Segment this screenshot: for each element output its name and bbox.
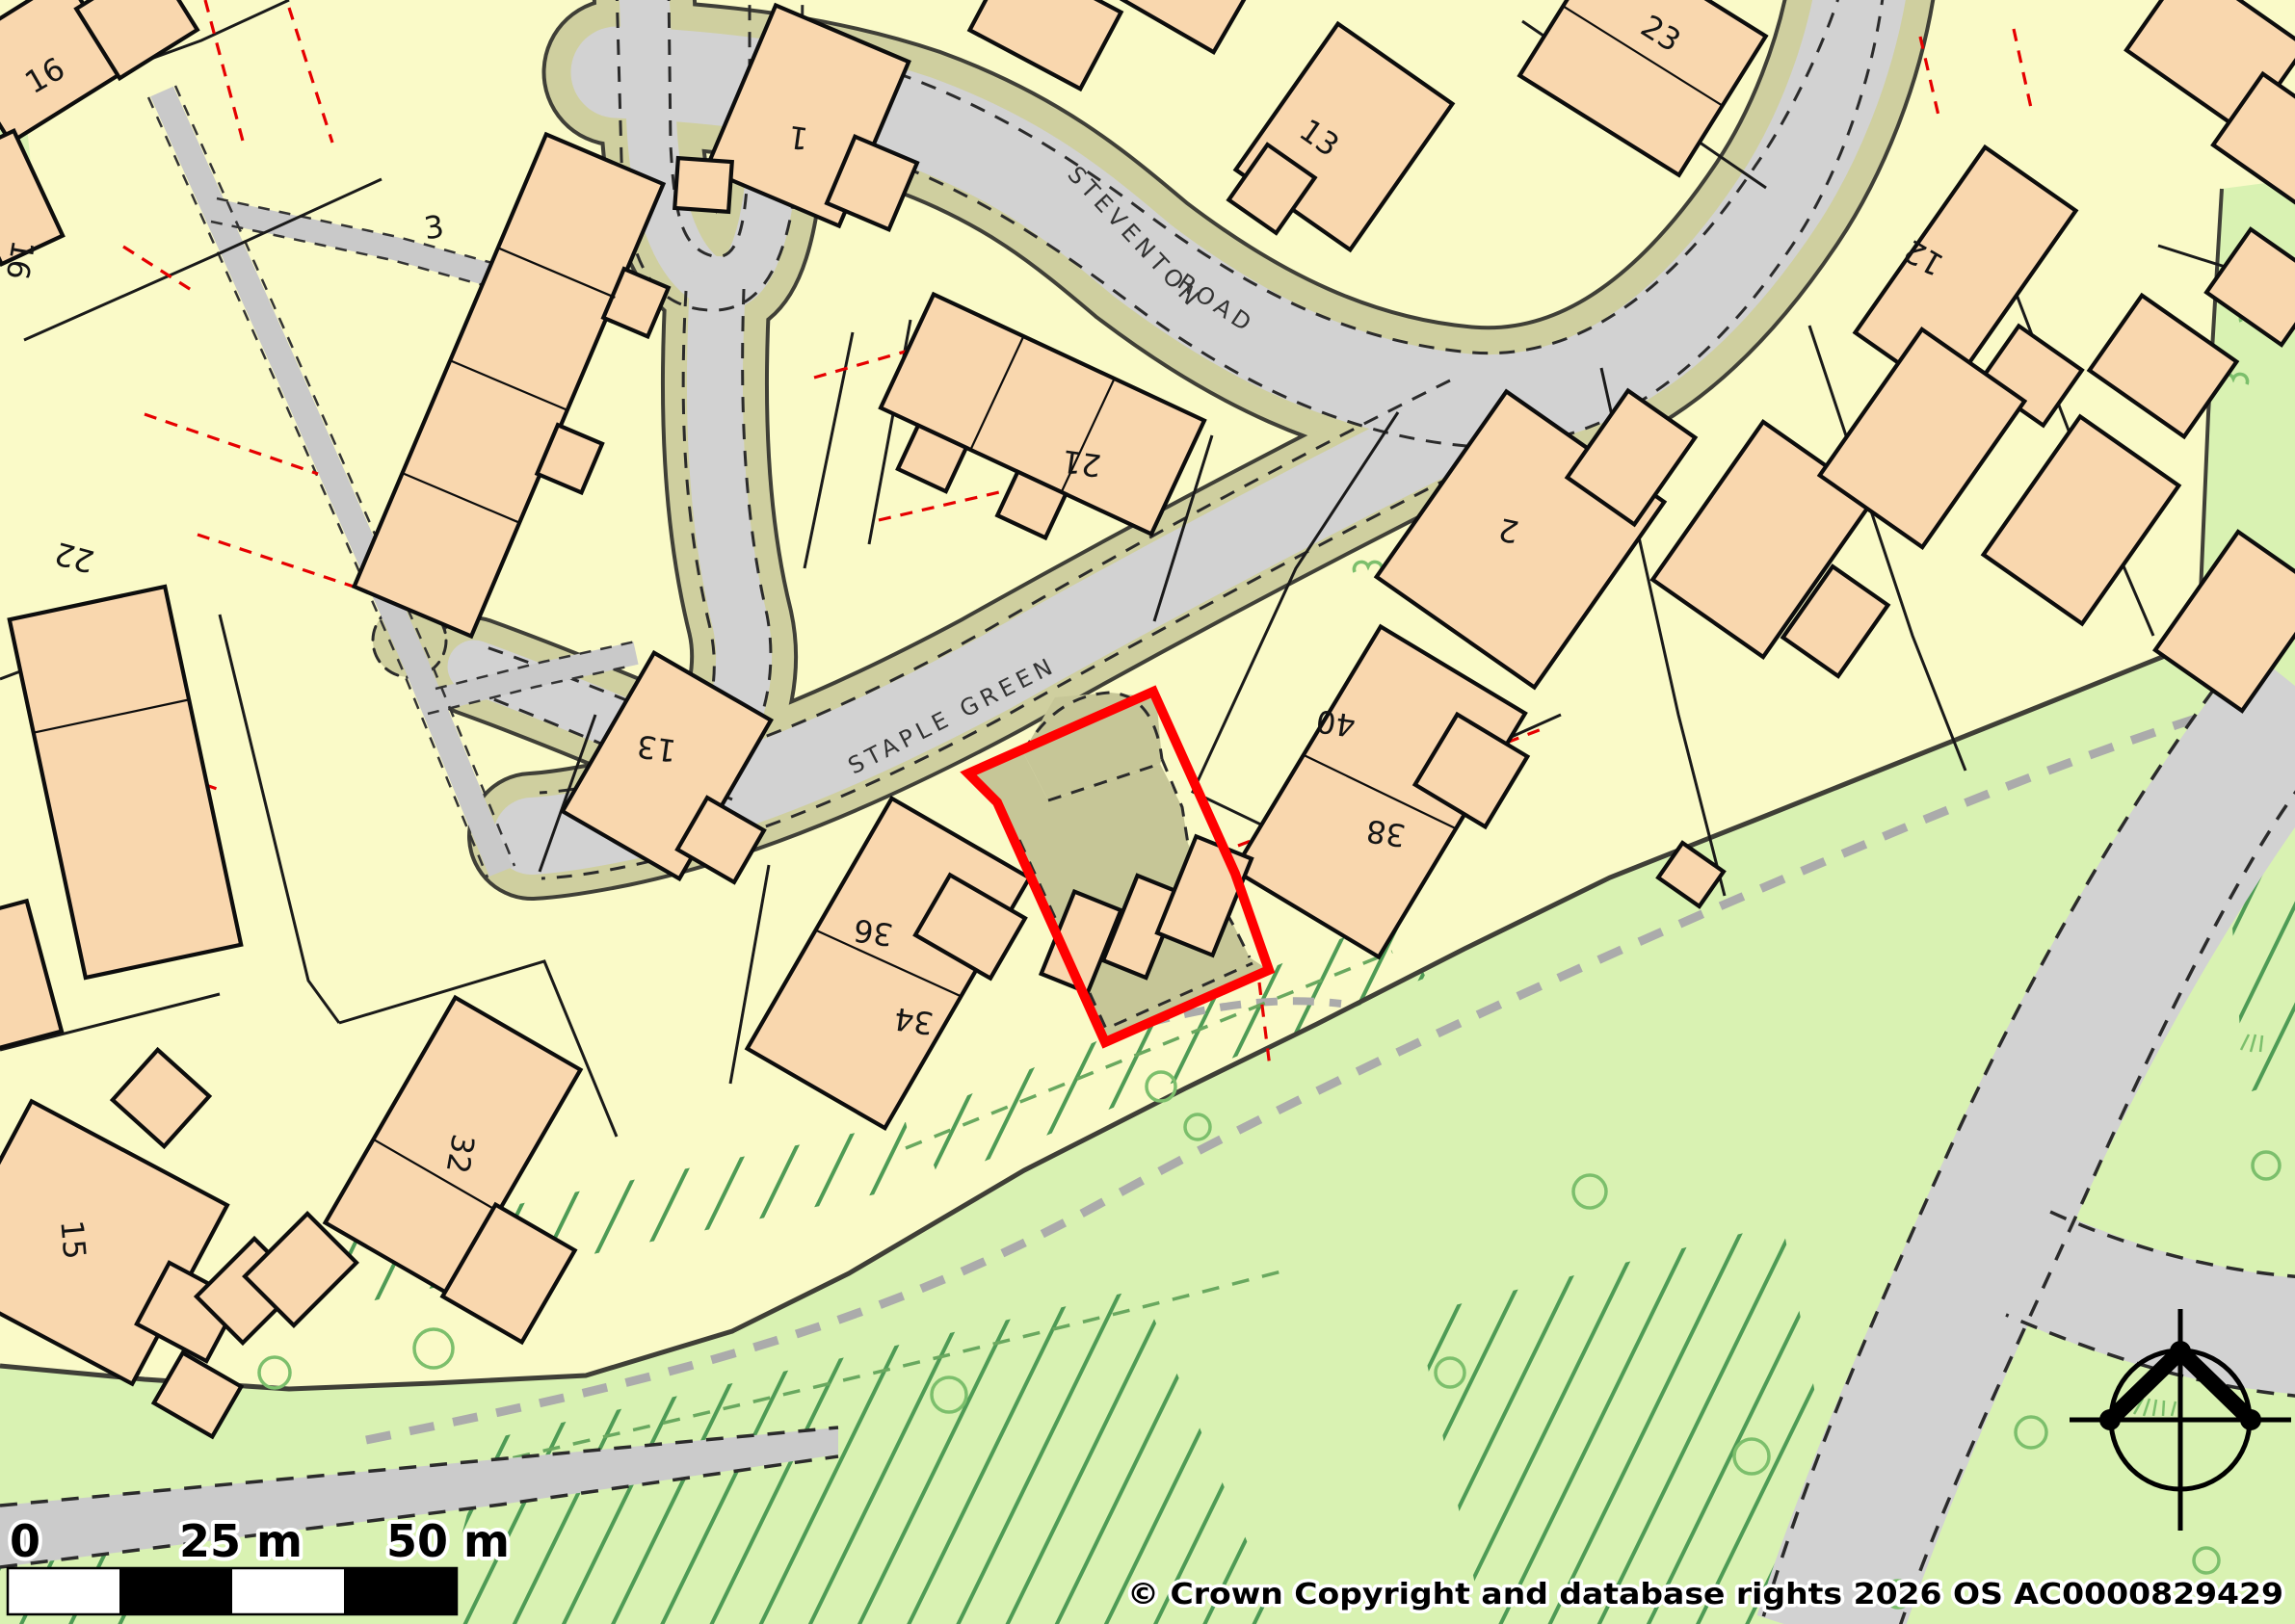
scale-label-0: 0 xyxy=(10,1515,40,1567)
house-number-38: 38 xyxy=(1364,812,1409,853)
house-number-15: 15 xyxy=(53,1218,92,1261)
site-location-plan: 16 16 3 1 13 23 12 21 22 2 13 40 38 36 3… xyxy=(0,0,2295,1624)
house-number-40: 40 xyxy=(1314,702,1359,744)
house-number-13-staple-green: 13 xyxy=(635,727,679,769)
house-number-34: 34 xyxy=(892,1000,936,1041)
house-number-36: 36 xyxy=(852,911,896,953)
house-number-21: 21 xyxy=(1060,442,1104,484)
scale-label-25m: 25 m xyxy=(179,1515,303,1567)
building xyxy=(674,158,731,212)
house-number-32: 32 xyxy=(439,1132,482,1177)
copyright-attribution: © Crown Copyright and database rights 20… xyxy=(1127,1578,2283,1611)
scale-label-50m: 50 m xyxy=(386,1515,510,1567)
map-canvas: 16 16 3 1 13 23 12 21 22 2 13 40 38 36 3… xyxy=(0,0,2295,1624)
house-number-16b: 16 xyxy=(0,238,41,283)
